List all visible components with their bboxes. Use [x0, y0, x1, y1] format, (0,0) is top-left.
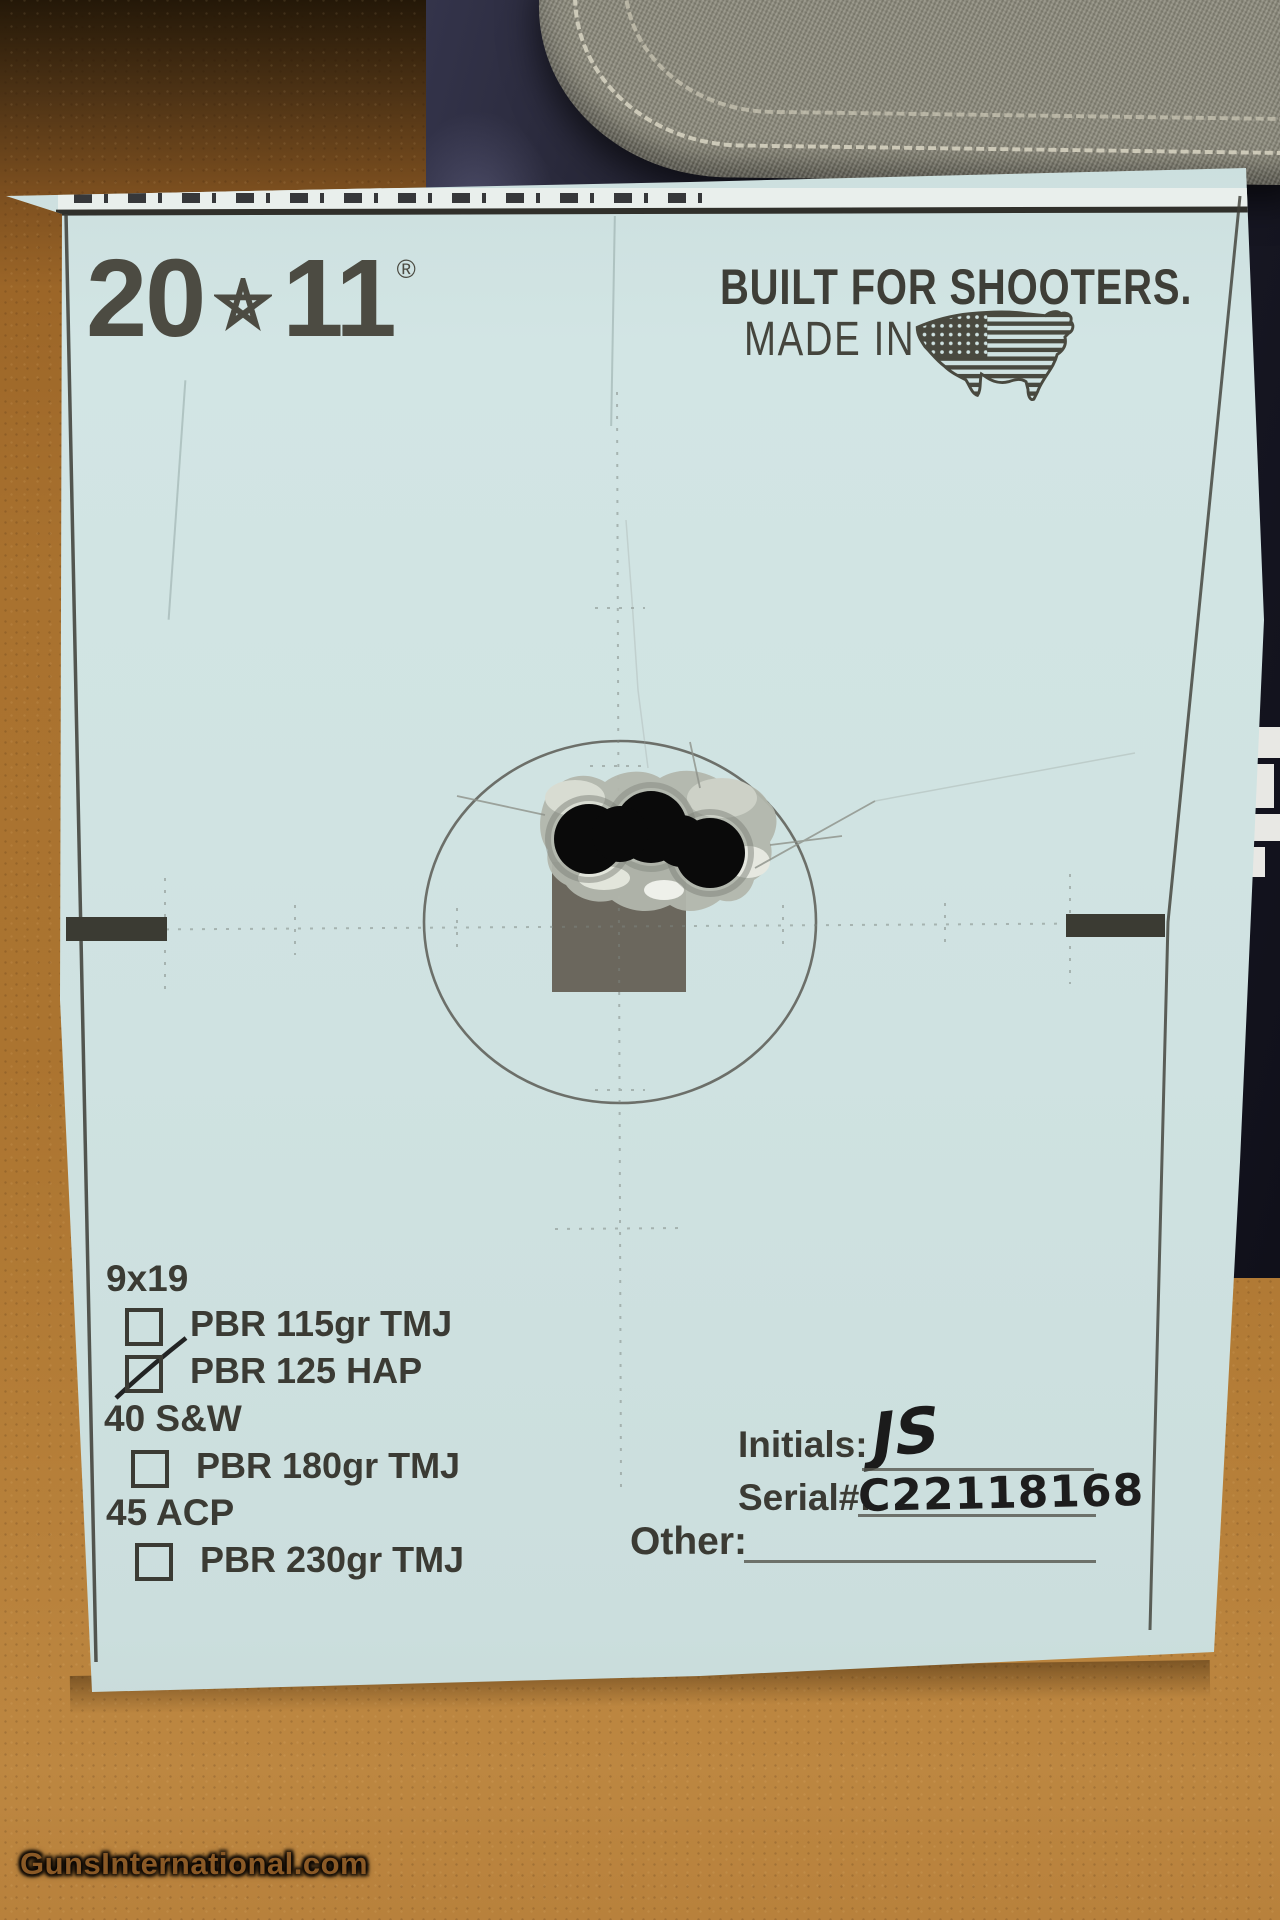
checkbox-pbr-125-hap-checked	[125, 1355, 163, 1393]
checkbox-pbr-180gr-tmj	[131, 1450, 169, 1488]
bullet-holes	[457, 520, 1135, 911]
option-label-pbr-125-hap: PBR 125 HAP	[190, 1350, 422, 1392]
option-label-pbr-230gr-tmj: PBR 230gr TMJ	[200, 1539, 464, 1581]
stitch-line-icon	[621, 0, 1280, 121]
caliber-header-9x19: 9x19	[106, 1258, 188, 1300]
checkbox-pbr-230gr-tmj	[135, 1543, 173, 1581]
initials-label: Initials:	[738, 1424, 868, 1466]
left-center-bar	[66, 917, 167, 941]
photo-of-test-target: 20 11 ® BUILT FOR SHOOTERS. MADE IN	[0, 0, 1280, 1920]
watermark-text: GunsInternational.com	[20, 1846, 368, 1882]
option-label-pbr-180gr-tmj: PBR 180gr TMJ	[196, 1445, 460, 1487]
target-graphics	[0, 0, 1280, 1920]
right-center-bar	[1066, 914, 1165, 937]
caliber-header-40sw: 40 S&W	[104, 1398, 242, 1440]
checkbox-pbr-115gr-tmj	[125, 1308, 163, 1346]
other-label: Other:	[630, 1520, 747, 1564]
target-sheet: 20 11 ® BUILT FOR SHOOTERS. MADE IN	[0, 0, 1280, 1920]
other-line	[744, 1560, 1096, 1563]
option-label-pbr-115gr-tmj: PBR 115gr TMJ	[190, 1303, 452, 1345]
serial-line	[858, 1514, 1096, 1517]
handwritten-initials: JS	[870, 1392, 941, 1473]
gray-canvas-pouch	[537, 0, 1280, 185]
printed-right-border	[1150, 196, 1240, 1630]
caliber-header-45acp: 45 ACP	[106, 1492, 234, 1534]
serial-label: Serial#:	[738, 1477, 872, 1519]
